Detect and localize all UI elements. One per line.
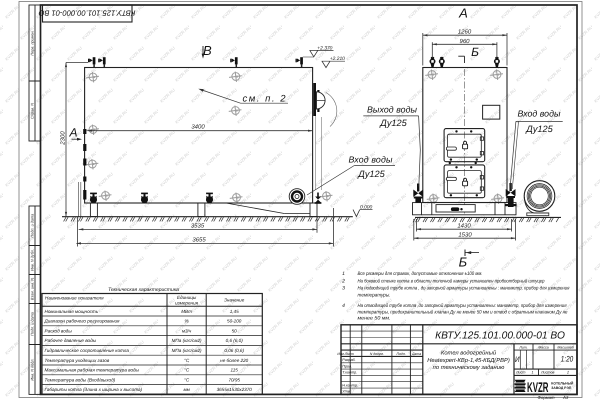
svg-text:Техническая характеристика: Техническая характеристика	[108, 287, 179, 293]
svg-text:Диапазон рабочего регулировани: Диапазон рабочего регулирования	[44, 319, 121, 324]
svg-text:N докум.: N докум.	[370, 352, 384, 356]
svg-text:1: 1	[532, 371, 534, 375]
svg-text:50: 50	[232, 328, 238, 333]
svg-text:не более 220: не более 220	[220, 358, 248, 363]
svg-text:МПа (кгс/см2): МПа (кгс/см2)	[172, 338, 202, 343]
svg-text:На отводящей трубе котла ,до з: На отводящей трубе котла ,до запорной ар…	[358, 303, 567, 309]
svg-text:Габариты котла (длина х ширина: Габариты котла (длина х ширина х высота)	[45, 387, 143, 392]
svg-text:Наименование показателя: Наименование показателя	[45, 296, 104, 301]
svg-text:КВТУ.125.101.00.000-01 ВО: КВТУ.125.101.00.000-01 ВО	[435, 331, 565, 342]
svg-text:Ду125: Ду125	[379, 118, 407, 128]
svg-text:Максимальная рабочая температу: Максимальная рабочая температура воды	[45, 368, 140, 373]
svg-text:960: 960	[459, 38, 470, 45]
svg-text:Инв. N дубл.: Инв. N дубл.	[31, 249, 35, 271]
svg-text:А: А	[68, 126, 77, 140]
svg-text:менее 50 мм.: менее 50 мм.	[358, 316, 391, 322]
svg-text:Пров.: Пров.	[342, 364, 352, 368]
svg-text:Гидравлическое сопротивление к: Гидравлическое сопротивление котла	[45, 348, 130, 353]
svg-text:1430: 1430	[457, 222, 471, 229]
svg-text:Справ. N: Справ. N	[31, 103, 35, 119]
svg-text:1: 1	[342, 271, 345, 277]
svg-text:50-100: 50-100	[227, 319, 242, 324]
svg-text:температуры.: температуры.	[358, 292, 391, 298]
svg-text:Все размеры для справок, допус: Все размеры для справок, допустимые откл…	[358, 271, 483, 277]
svg-text:КОТЕЛЬНЫЙ: КОТЕЛЬНЫЙ	[551, 381, 574, 386]
svg-text:°С: °С	[184, 368, 190, 373]
svg-text:В: В	[203, 43, 212, 58]
svg-text:Инв. N подл.: Инв. N подл.	[31, 358, 35, 380]
svg-text:по техническому заданию: по техническому заданию	[433, 364, 505, 371]
svg-text:3655х1530х2370: 3655х1530х2370	[217, 387, 253, 392]
svg-text:Б: Б	[471, 45, 479, 59]
svg-text:1260: 1260	[458, 29, 472, 36]
svg-text:Лист: Лист	[515, 371, 526, 375]
svg-text:2: 2	[566, 371, 569, 375]
svg-text:Масштаб: Масштаб	[557, 346, 574, 350]
svg-text:Расход воды: Расход воды	[45, 328, 73, 333]
svg-text:Изм.Лист: Изм.Лист	[337, 352, 354, 356]
svg-text:Взам. инв. N: Взам. инв. N	[31, 278, 35, 300]
svg-text:4: 4	[342, 303, 345, 309]
svg-text:Разраб.: Разраб.	[342, 358, 355, 362]
svg-text:Масса: Масса	[538, 346, 548, 350]
svg-text:115: 115	[231, 368, 239, 373]
svg-text:%: %	[185, 319, 189, 324]
svg-text:1,45: 1,45	[230, 309, 239, 314]
svg-text:КВТУ.125.101.00.000-01 ВО: КВТУ.125.101.00.000-01 ВО	[39, 9, 136, 18]
svg-text:Рабочее давление воды: Рабочее давление воды	[45, 338, 97, 343]
svg-text:мм: мм	[183, 387, 190, 392]
svg-text:И: И	[515, 355, 520, 364]
svg-text:Т.контр.: Т.контр.	[342, 371, 357, 375]
svg-text:2300: 2300	[60, 131, 67, 146]
svg-text:2: 2	[341, 278, 345, 284]
svg-text:измерения: измерения	[175, 301, 199, 306]
svg-text:м3/ч: м3/ч	[182, 328, 192, 333]
svg-text:Температура воды (Вход/выход): Температура воды (Вход/выход)	[45, 377, 116, 382]
svg-text:Выход воды: Выход воды	[367, 105, 418, 115]
svg-text:А: А	[458, 6, 468, 21]
svg-text:Heatexpert-КВр-1,45-КБД(РВР): Heatexpert-КВр-1,45-КБД(РВР)	[427, 357, 510, 364]
svg-text:Ду125: Ду125	[525, 124, 553, 134]
svg-text:температуры, предохранительный: температуры, предохранительный клапан Ду…	[358, 309, 568, 315]
svg-text:Котел водогрейный: Котел водогрейный	[441, 349, 497, 356]
svg-text:Ду125: Ду125	[357, 169, 385, 179]
svg-text:Вход воды: Вход воды	[518, 109, 562, 119]
svg-text:Дата: Дата	[411, 352, 421, 356]
svg-text:°С: °С	[184, 377, 190, 382]
svg-text:0,6 (6,0): 0,6 (6,0)	[226, 338, 244, 343]
svg-text:Н.контр.: Н.контр.	[342, 383, 358, 387]
svg-text:На боковой стенке котла в обла: На боковой стенке котла в области топочн…	[358, 278, 545, 284]
svg-text:А3: А3	[562, 395, 569, 400]
svg-text:KVZR: KVZR	[527, 379, 549, 395]
svg-text:Формат: Формат	[538, 395, 555, 400]
svg-text:ЗАВОД РЭП: ЗАВОД РЭП	[551, 386, 572, 390]
svg-text:Б: Б	[459, 254, 468, 269]
svg-text:Подп. и дата: Подп. и дата	[31, 312, 35, 336]
svg-text:Подп.: Подп.	[397, 352, 406, 356]
svg-text:Температура уходящих газов: Температура уходящих газов	[45, 358, 110, 363]
svg-text:70/95: 70/95	[228, 377, 240, 382]
svg-text:Перв. примен.: Перв. примен.	[31, 30, 35, 55]
svg-text:Значение: Значение	[224, 298, 245, 303]
svg-text:На подводящей трубе котла ,: На подводящей трубе котла , до запорной …	[358, 286, 570, 292]
svg-text:3400: 3400	[191, 124, 205, 131]
svg-text:°С: °С	[184, 358, 190, 363]
svg-text:3535: 3535	[191, 223, 205, 230]
svg-text:Номинальная мощность: Номинальная мощность	[45, 309, 99, 314]
svg-text:1:20: 1:20	[561, 355, 574, 364]
svg-text:3655: 3655	[192, 237, 206, 244]
svg-text:Лит.: Лит.	[518, 346, 527, 350]
svg-text:Вход воды: Вход воды	[349, 155, 394, 165]
svg-text:Листов: Листов	[540, 371, 555, 375]
svg-text:3: 3	[342, 286, 345, 292]
svg-text:0,06 (0,6): 0,06 (0,6)	[224, 348, 244, 353]
svg-text:МВт: МВт	[181, 309, 192, 314]
svg-text:Подп. и дата: Подп. и дата	[31, 214, 35, 238]
svg-text:Единицы: Единицы	[177, 295, 197, 300]
svg-text:Утв.: Утв.	[342, 390, 350, 394]
svg-text:МПа (кгс/см2): МПа (кгс/см2)	[172, 348, 202, 353]
svg-text:1530: 1530	[458, 231, 472, 238]
